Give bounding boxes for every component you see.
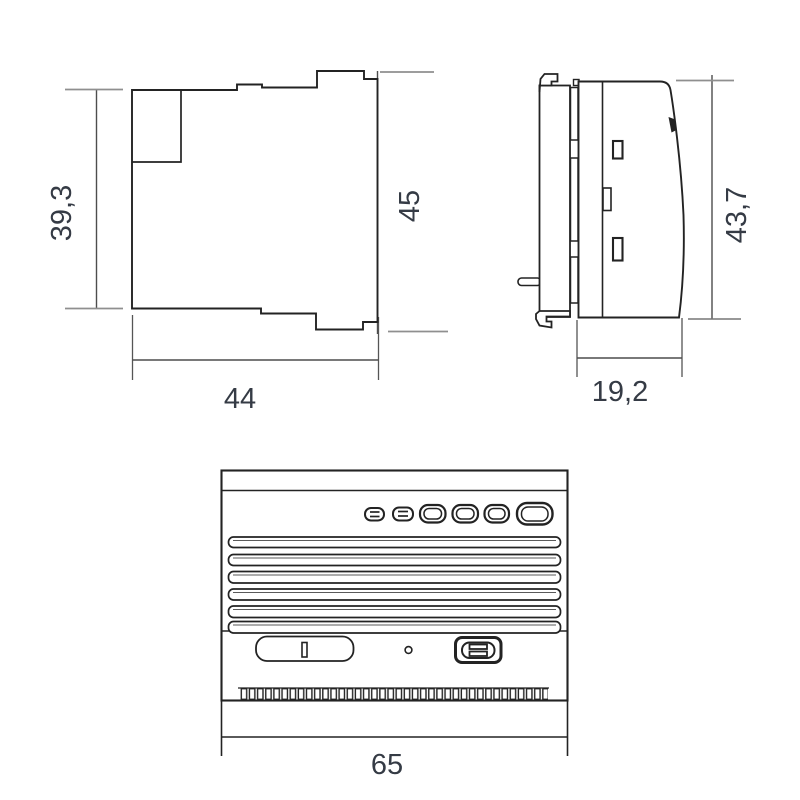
outline-view [65, 71, 448, 380]
vent-slot [229, 572, 561, 584]
panel-face-view [222, 471, 568, 757]
side-slot [613, 238, 623, 261]
reset-hole [405, 647, 412, 654]
technical-drawing-canvas: 39,3 44 45 43,7 19,2 65 [0, 0, 800, 800]
vent-slot [229, 537, 561, 548]
vent-slot [229, 555, 561, 566]
module-outline [132, 71, 378, 330]
dim-label-outline-height: 39,3 [45, 168, 79, 258]
dim-label-outline-width: 44 [195, 382, 285, 416]
side-profile-view [518, 74, 741, 377]
strip-segment [571, 158, 579, 241]
dim-label-outline-overall-height: 45 [393, 161, 427, 251]
vent-slot [229, 589, 561, 600]
dim-label-side-depth: 19,2 [575, 375, 665, 409]
dim-label-side-height: 43,7 [720, 170, 754, 260]
usb-pin-bar [470, 652, 488, 657]
vent-slot [229, 606, 561, 618]
side-body-outline [579, 82, 684, 318]
vent-slot [229, 622, 561, 634]
slide-button-notch [302, 643, 307, 658]
din-clip-plate [540, 86, 571, 318]
mounting-pin [518, 278, 541, 286]
din-clip-bottom-hook [536, 311, 570, 328]
panel-outline [222, 471, 568, 701]
dim-label-panel-width: 65 [342, 748, 432, 782]
terminal-teeth [240, 688, 548, 700]
usb-pin-bar [470, 645, 488, 650]
dimension-drawing [0, 0, 800, 800]
side-slot [603, 188, 611, 211]
strip-segment [571, 257, 579, 303]
side-slot [613, 141, 623, 159]
strip-segment [571, 88, 579, 141]
usb-port [456, 638, 502, 663]
